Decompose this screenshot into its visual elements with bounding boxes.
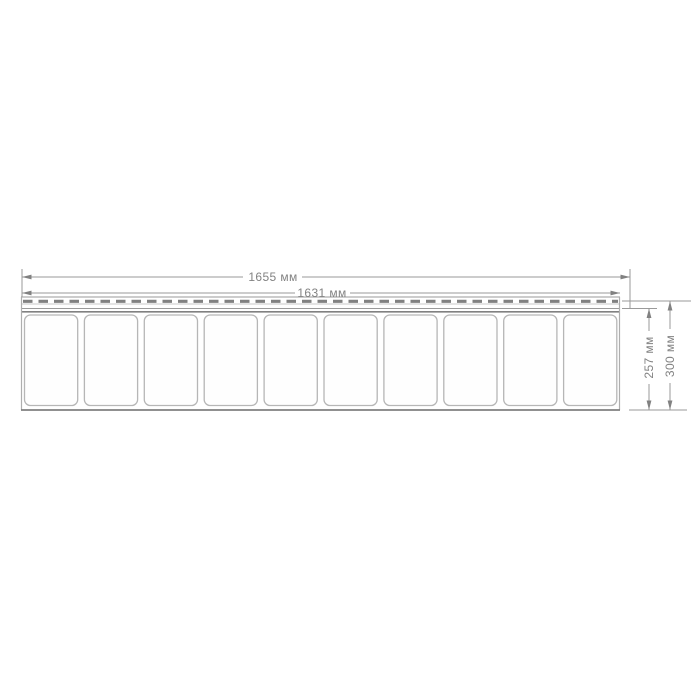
panel-height-label: 257 мм [642, 336, 656, 378]
arrow-down [668, 401, 673, 411]
slat-rect [25, 315, 78, 406]
slat-rect [204, 315, 257, 406]
slat-rect [144, 315, 197, 406]
panel-drawing [21, 297, 620, 410]
arrow-up [668, 301, 673, 311]
slat-rect [504, 315, 557, 406]
slat-rect [324, 315, 377, 406]
arrow-left [22, 275, 32, 280]
arrow-right [611, 291, 621, 296]
slat-rect [564, 315, 617, 406]
slat-rect [264, 315, 317, 406]
dimension-cover-width: 1631 мм [22, 286, 620, 300]
diagram-canvas: 1655 мм 1631 мм 257 мм 300 мм [0, 0, 700, 700]
slat-rect [384, 315, 437, 406]
arrow-down [647, 401, 652, 411]
slat-rect [444, 315, 497, 406]
slat-rect [84, 315, 137, 406]
overall-height-label: 300 мм [663, 335, 677, 377]
arrow-left [22, 291, 32, 296]
arrow-right [621, 275, 631, 280]
arrow-up [647, 309, 652, 319]
panel-dimension-drawing: 1655 мм 1631 мм 257 мм 300 мм [0, 0, 700, 700]
slat-row [25, 315, 617, 406]
cover-width-label: 1631 мм [297, 286, 346, 300]
dimension-panel-height: 257 мм [622, 309, 657, 411]
overall-width-label: 1655 мм [248, 270, 297, 284]
dimension-overall-height: 300 мм [622, 301, 691, 410]
